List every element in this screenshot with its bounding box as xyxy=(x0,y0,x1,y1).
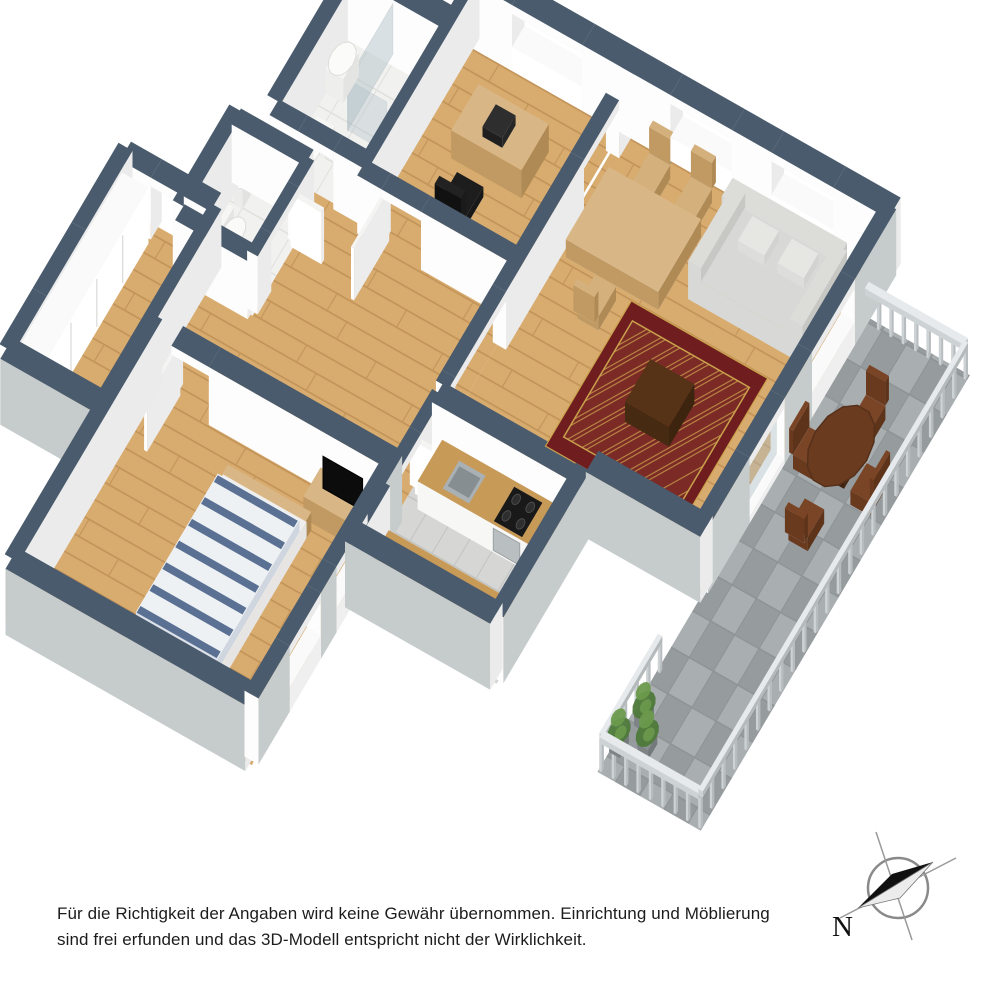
disclaimer-line-1: Für die Richtigkeit der Angaben wird kei… xyxy=(57,901,837,927)
floor-plan-scene xyxy=(0,0,970,831)
disclaimer: Für die Richtigkeit der Angaben wird kei… xyxy=(57,901,837,953)
disclaimer-line-2: sind frei erfunden und das 3D-Modell ent… xyxy=(57,927,837,953)
